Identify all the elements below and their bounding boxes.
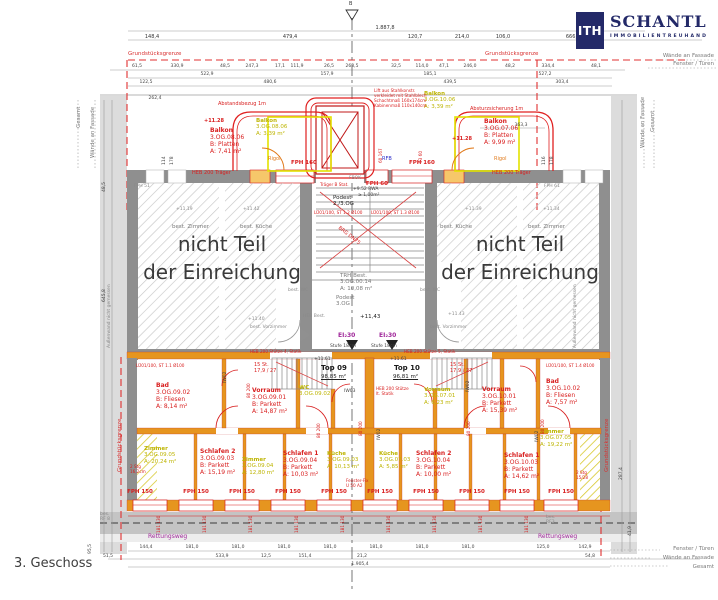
logo-company-name: SCHANTL [610,12,708,31]
floorplan-page: 1.887,8148,4479,4120,7214,0106,0666,2BGr… [0,0,718,600]
logo-monogram-text: ITH [578,24,602,38]
logo-monogram: ITH [576,12,604,49]
stairwell [312,188,425,280]
door-arcs [216,366,570,428]
balcony-right [452,112,553,171]
existing-interior-hatch [138,183,599,349]
logo-company-subtitle: IMMOBILIENTREUHAND [610,34,708,39]
new-walls [127,352,610,511]
door-swing-triangle [346,340,358,350]
lift-shaft [306,98,374,178]
door-swing-triangle [386,340,398,350]
floor-title: 3. Geschoss [14,556,92,571]
lower-stairs [272,358,492,389]
logo-text: SCHANTL IMMOBILIENTREUHAND [610,12,708,39]
company-logo: ITH SCHANTL IMMOBILIENTREUHAND [576,12,708,49]
floorplan-drawing [0,0,718,600]
